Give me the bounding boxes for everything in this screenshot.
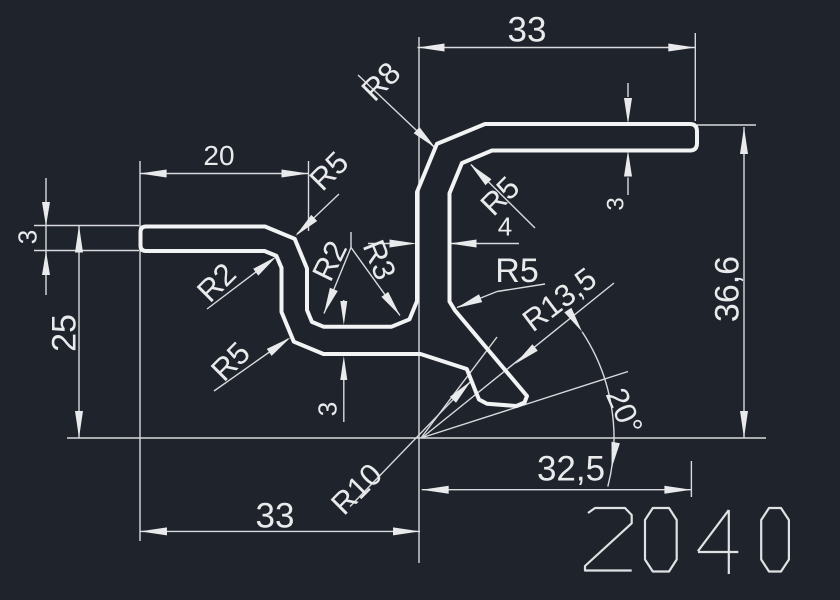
svg-text:32,5: 32,5: [537, 450, 605, 489]
svg-text:3: 3: [12, 230, 42, 244]
svg-text:R5: R5: [495, 252, 538, 290]
svg-text:20: 20: [203, 140, 234, 171]
svg-text:25: 25: [46, 314, 84, 352]
svg-text:3: 3: [312, 402, 342, 416]
svg-text:33: 33: [508, 11, 547, 50]
svg-text:33: 33: [256, 497, 295, 536]
svg-text:36,6: 36,6: [709, 256, 747, 322]
svg-text:3: 3: [603, 197, 630, 210]
